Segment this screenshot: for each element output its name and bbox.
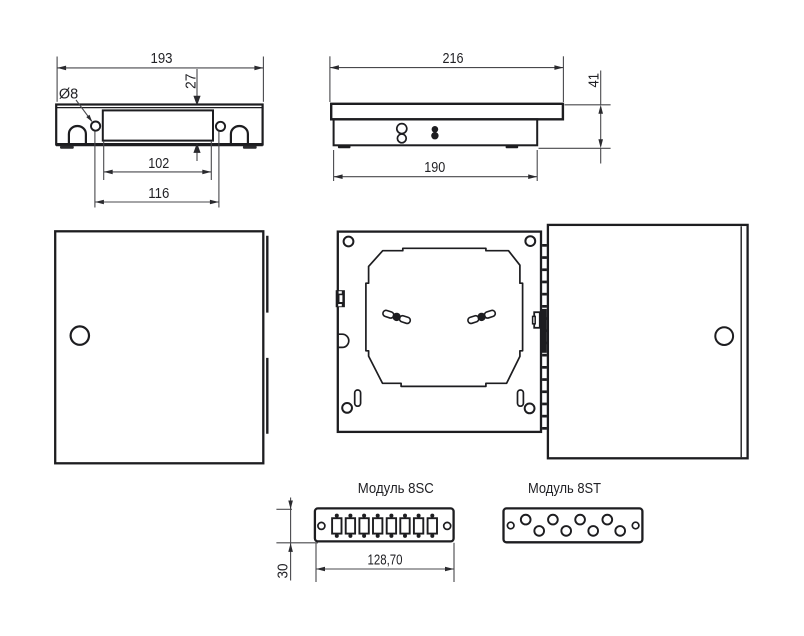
- svg-text:128,70: 128,70: [368, 552, 403, 568]
- svg-text:216: 216: [443, 51, 464, 67]
- svg-text:Модуль 8SC: Модуль 8SC: [358, 481, 434, 497]
- svg-text:27: 27: [183, 74, 199, 90]
- svg-text:Модуль 8ST: Модуль 8ST: [528, 481, 601, 497]
- svg-text:102: 102: [148, 156, 169, 172]
- svg-text:193: 193: [151, 51, 173, 67]
- svg-text:41: 41: [587, 73, 603, 88]
- svg-text:30: 30: [276, 564, 292, 579]
- svg-text:190: 190: [424, 160, 445, 176]
- svg-text:Ø8: Ø8: [59, 87, 78, 103]
- svg-text:116: 116: [148, 186, 169, 202]
